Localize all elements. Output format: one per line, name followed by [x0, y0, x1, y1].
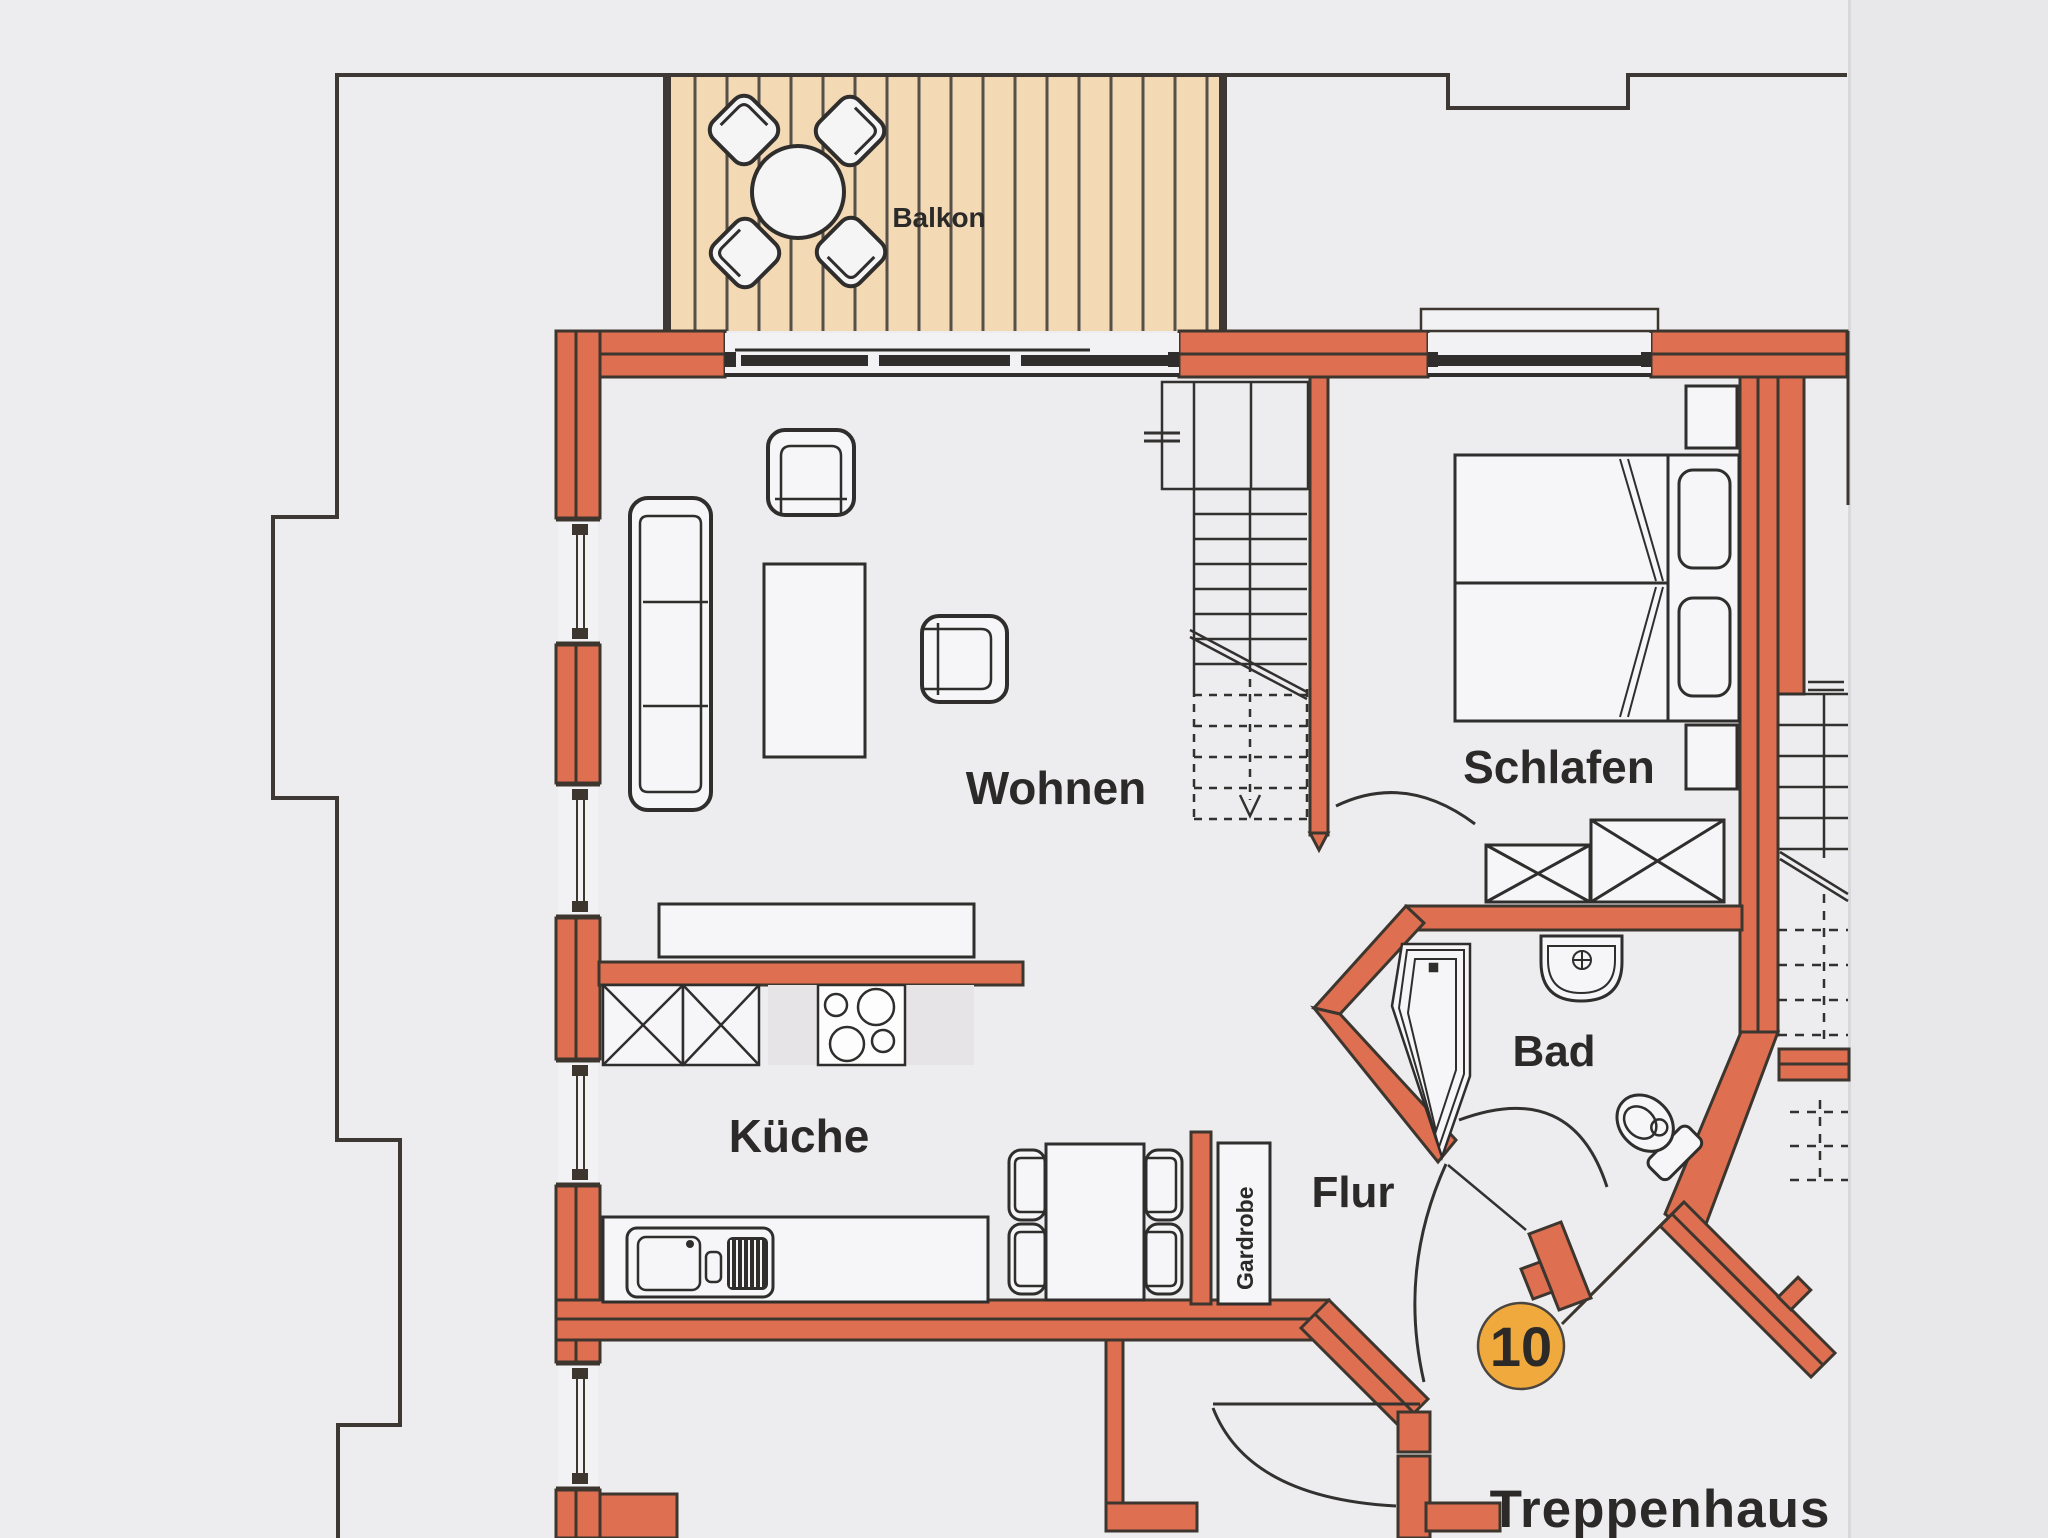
svg-text:Treppenhaus: Treppenhaus [1490, 1480, 1831, 1538]
svg-text:Schlafen: Schlafen [1463, 741, 1655, 793]
svg-text:Wohnen: Wohnen [966, 762, 1147, 814]
svg-text:Balkon: Balkon [892, 202, 985, 233]
svg-text:Küche: Küche [729, 1110, 870, 1162]
svg-text:Bad: Bad [1512, 1027, 1595, 1076]
svg-text:10: 10 [1490, 1315, 1552, 1378]
svg-text:Gardrobe: Gardrobe [1232, 1186, 1258, 1290]
svg-text:Flur: Flur [1311, 1168, 1394, 1217]
